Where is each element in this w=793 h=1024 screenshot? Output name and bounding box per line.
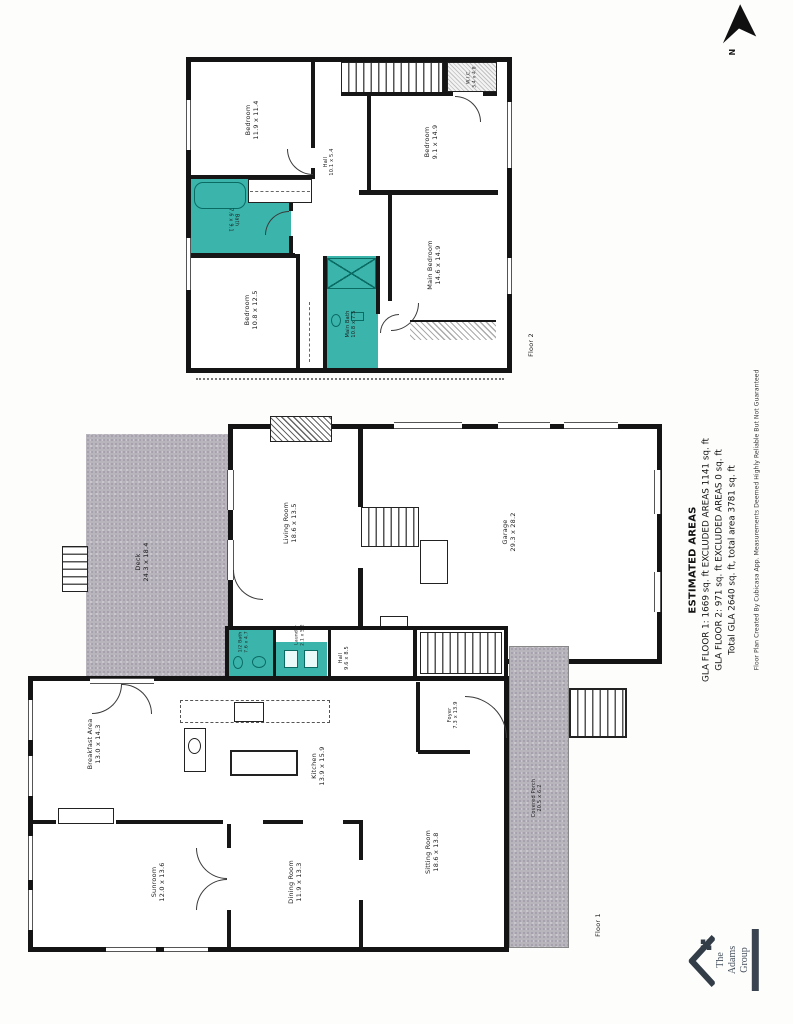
room-label-hall-2: Hall10.1 x 5.4 xyxy=(323,148,336,175)
floor2-caption: Floor 2 xyxy=(527,333,535,357)
wall xyxy=(410,320,496,322)
sink xyxy=(252,656,266,668)
logo-banner xyxy=(752,929,759,991)
bathtub xyxy=(194,182,246,209)
disclaimer-text: Floor Plan Created By Cubicasa App. Meas… xyxy=(753,344,760,696)
estimated-areas-line2: GLA FLOOR 2: 971 sq. ft EXCLUDED AREAS 0… xyxy=(713,400,726,720)
toilet xyxy=(331,314,341,327)
closet-rod xyxy=(309,302,310,362)
stove xyxy=(234,702,264,722)
toilet xyxy=(233,656,243,669)
room-label-kitchen: Kitchen13.9 x 15.9 xyxy=(310,746,326,785)
room-label-sitting-room: Sitting Room18.6 x 13.8 xyxy=(424,830,440,874)
window xyxy=(28,756,33,796)
compass-n-label: N xyxy=(728,49,738,56)
garage-window xyxy=(394,422,462,429)
wall xyxy=(116,820,223,824)
estimated-areas-title: ESTIMATED AREAS xyxy=(685,400,700,720)
kitchen-island xyxy=(230,750,298,776)
wall xyxy=(483,92,497,96)
wall xyxy=(418,750,470,754)
window xyxy=(227,470,234,510)
wall xyxy=(323,256,327,368)
deck xyxy=(86,434,230,686)
room-label-dining-room: Dining Room11.9 x 13.3 xyxy=(287,860,303,904)
washer xyxy=(284,650,298,668)
wall xyxy=(263,820,303,824)
window xyxy=(28,700,33,740)
room-label-sunroom: Sunroom12.0 x 13.6 xyxy=(150,862,166,901)
closet xyxy=(410,322,496,340)
estimated-areas-block: ESTIMATED AREAS GLA FLOOR 1: 1669 sq. ft… xyxy=(685,400,738,720)
wall xyxy=(376,256,380,314)
deck-steps xyxy=(62,546,88,592)
window xyxy=(28,836,33,880)
wall xyxy=(296,256,300,368)
room-label-bath: Bath7.6 x 9.1 xyxy=(227,208,240,232)
wall xyxy=(227,824,231,848)
wall xyxy=(191,254,300,258)
dryer xyxy=(304,650,318,668)
room-label-garage: Garage29.3 x 28.2 xyxy=(501,512,517,551)
logo-roof-icon xyxy=(689,932,715,988)
window xyxy=(507,258,512,294)
wall xyxy=(227,910,231,948)
floor1-plan: Deck24.3 x 18.4 Living Room18.6 x 13.5 G… xyxy=(28,420,632,968)
window xyxy=(654,572,661,612)
room-label-foyer: Foyer7.3 x 13.9 xyxy=(447,701,460,728)
wall xyxy=(341,92,453,96)
room-label-bedroom-1: Bedroom11.9 x 11.4 xyxy=(244,100,260,139)
wall xyxy=(416,682,420,752)
main-stairs xyxy=(420,632,502,674)
wall xyxy=(388,195,392,301)
window-seat xyxy=(58,808,114,824)
wall xyxy=(311,62,315,148)
half-bath-room xyxy=(229,630,273,676)
garage-door-opening xyxy=(564,422,618,429)
window xyxy=(186,238,191,290)
north-arrow-icon xyxy=(716,2,762,48)
room-label-half-bath: 1/2 Bath7.6 x 4.7 xyxy=(238,631,249,653)
utility-box xyxy=(420,540,448,584)
room-label-main-bath: Main Bath10.8 x 7.5 xyxy=(345,310,358,337)
logo-line2: Adams xyxy=(728,946,739,974)
window xyxy=(106,947,156,952)
door-arc xyxy=(380,314,399,333)
overhang-line xyxy=(196,378,504,380)
wall xyxy=(367,96,371,192)
estimated-areas-line3: Total GLA 2640 sq. ft, total area 3781 s… xyxy=(726,400,739,720)
window xyxy=(654,470,661,514)
front-steps xyxy=(569,688,627,738)
adams-group-logo: The Adams Group xyxy=(689,918,759,1002)
window xyxy=(28,890,33,930)
room-label-covered-porch: Covered Porch20.5 x 6.2 xyxy=(531,779,544,818)
wall xyxy=(359,900,363,948)
wall xyxy=(413,630,417,676)
logo-line3: Group xyxy=(739,947,750,973)
door-arc xyxy=(455,96,481,122)
wall xyxy=(328,630,331,676)
estimated-areas-line1: GLA FLOOR 1: 1669 sq. ft EXCLUDED AREAS … xyxy=(700,400,713,720)
window xyxy=(186,100,191,150)
room-label-breakfast-area: Breakfast Area13.0 x 14.3 xyxy=(86,719,102,770)
window xyxy=(507,102,512,168)
floor1-caption: Floor 1 xyxy=(594,913,602,937)
room-label-main-bedroom: Main Bedroom14.6 x 14.9 xyxy=(426,240,442,289)
fireplace xyxy=(270,416,332,442)
room-label-bedroom-2: Bedroom9.1 x 14.9 xyxy=(423,125,439,160)
door-arc xyxy=(287,149,313,175)
wall xyxy=(359,824,363,860)
floor-plan-page: N xyxy=(0,0,793,1024)
closet-rod xyxy=(250,191,310,192)
window xyxy=(164,947,208,952)
wall xyxy=(33,820,56,824)
room-label-deck: Deck24.3 x 18.4 xyxy=(134,542,150,581)
room-label-bedroom-3: Bedroom10.8 x 12.5 xyxy=(243,290,259,329)
floor2-plan: Bedroom11.9 x 11.4 Hall10.1 x 5.4 Bath7.… xyxy=(186,57,512,373)
room-label-hall-1: Hall9.6 x 8.5 xyxy=(338,646,351,670)
room-label-living-room: Living Room18.6 x 13.5 xyxy=(282,502,298,544)
logo-line1: The xyxy=(716,952,727,968)
basement-stairs xyxy=(361,507,419,547)
room-label-laundry: Laundry2.1 x 5.2 xyxy=(294,624,305,646)
kitchen-sink xyxy=(188,738,201,754)
stairs xyxy=(341,62,443,93)
wall xyxy=(358,429,363,507)
shower xyxy=(327,258,376,289)
garage-door-opening xyxy=(498,422,550,429)
room-label-wic: W.I.C.3.4 x 4.8 xyxy=(466,66,477,88)
wall xyxy=(359,190,498,195)
